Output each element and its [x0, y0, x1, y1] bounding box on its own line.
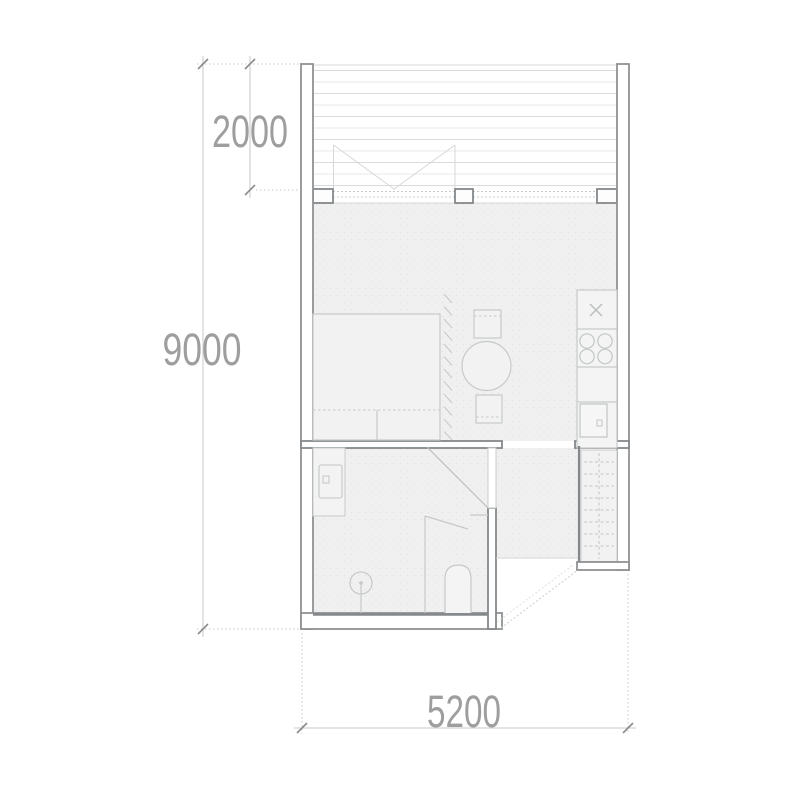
floor-plan-canvas: 9000 2000 5200: [0, 0, 800, 800]
glazing-wall: [313, 189, 617, 203]
round-table: [462, 342, 511, 391]
vanity: [313, 448, 345, 516]
door-swing-v-mark: [334, 145, 456, 189]
kitchen-appliance: [580, 404, 607, 437]
post-left: [313, 189, 333, 203]
bathroom-right-wall: [488, 508, 496, 629]
dimension-2000: 2000: [212, 56, 300, 198]
dimension-label-5200: 5200: [427, 686, 501, 737]
toilet: [445, 565, 471, 613]
terrace-deck: [313, 65, 617, 189]
wardrobe-bottom-wall: [577, 562, 629, 570]
bathroom-top-wall: [301, 441, 502, 448]
floor-plan-drawing: 9000 2000 5200: [0, 0, 800, 800]
deck-boards: [313, 71, 617, 186]
door-opening: [488, 448, 496, 508]
left-wall: [301, 64, 313, 629]
stool-bottom: [476, 395, 502, 423]
dimension-label-9000: 9000: [163, 324, 242, 375]
dimension-label-2000: 2000: [212, 106, 288, 157]
entry-hall-floor: [496, 448, 577, 558]
kitchen-counter: [577, 290, 617, 448]
post-right: [597, 189, 617, 203]
bed: [313, 314, 440, 440]
entry-porch-edge: [496, 558, 578, 628]
stool-top: [474, 310, 501, 338]
right-wall: [617, 64, 629, 570]
post-middle: [455, 189, 473, 203]
